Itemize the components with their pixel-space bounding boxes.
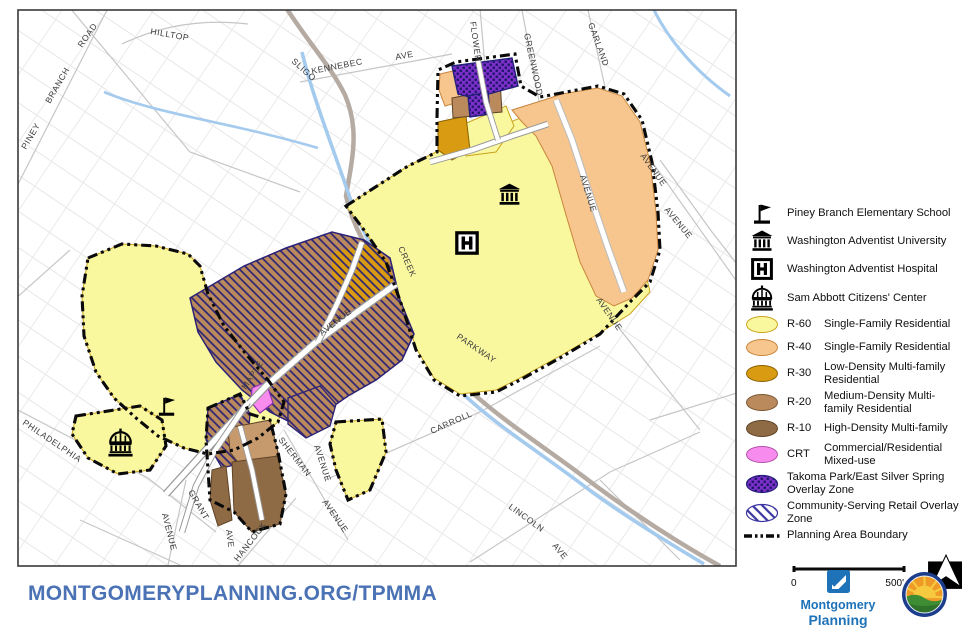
boundary-label: Planning Area Boundary [787, 529, 962, 542]
legend-item-hospital: Washington Adventist Hospital [744, 257, 962, 281]
scale-zero: 0 [791, 578, 797, 589]
legend-item-csr-overlay: Community-Serving Retail Overlay Zone [744, 500, 962, 525]
legend-item-university: Washington Adventist University [744, 229, 962, 253]
legend-item-r40: R-40 Single-Family Residential [744, 338, 962, 357]
footer-url: MONTGOMERYPLANNING.ORG/TPMMA [28, 582, 437, 606]
legend-item-elementary: Piney Branch Elementary School [744, 201, 962, 225]
overlay-label: Community-Serving Retail Overlay Zone [787, 500, 962, 525]
zone-code: R-20 [787, 396, 817, 409]
zone-code: R-10 [787, 422, 817, 435]
legend-label: Washington Adventist University [787, 235, 962, 248]
montgomery-planning-mark-icon [827, 570, 850, 593]
overlay-label: Takoma Park/East Silver Spring Overlay Z… [787, 471, 962, 496]
legend-item-tpess-overlay: Takoma Park/East Silver Spring Overlay Z… [744, 471, 962, 496]
university-icon [744, 229, 780, 253]
r40-swatch [745, 338, 779, 357]
zone-code: R-60 [787, 318, 817, 331]
hospital-icon [457, 233, 477, 253]
zone-code: R-30 [787, 367, 817, 380]
zone-label: Commercial/Residential Mixed-use [824, 442, 962, 467]
legend-label: Piney Branch Elementary School [787, 207, 962, 220]
r10-swatch [745, 419, 779, 438]
montgomery-planning-logo: Montgomery Planning [800, 570, 876, 628]
legend-item-crt: CRT Commercial/Residential Mixed-use [744, 442, 962, 467]
legend-label: Sam Abbott Citizens' Center [787, 292, 962, 305]
zoning-map-svg: PINEY BRANCH ROAD HILLTOP SLIGO KENNEBEC… [0, 0, 740, 572]
map-canvas: PINEY BRANCH ROAD HILLTOP SLIGO KENNEBEC… [0, 0, 740, 577]
takoma-park-zoning-map-page: { "footer": { "url": "MONTGOMERYPLANNING… [0, 0, 964, 626]
zone-label: Single-Family Residential [824, 341, 962, 354]
zone-label: Single-Family Residential [824, 318, 962, 331]
legend-item-citizens-center: Sam Abbott Citizens' Center [744, 285, 962, 311]
dome-icon [744, 285, 780, 311]
legend-item-r20: R-20 Medium-Density Multi-family Residen… [744, 390, 962, 415]
r60-swatch [745, 315, 779, 334]
brand-line1: Montgomery [800, 599, 876, 613]
legend-item-r60: R-60 Single-Family Residential [744, 315, 962, 334]
legend-label: Washington Adventist Hospital [787, 263, 962, 276]
boundary-line-sample [744, 532, 780, 540]
takoma-park-seal-icon [901, 571, 948, 623]
legend-item-r10: R-10 High-Density Multi-family [744, 419, 962, 438]
zone-code: R-40 [787, 341, 817, 354]
zone-label: High-Density Multi-family [824, 422, 962, 435]
zone-label: Low-Density Multi-family Residential [824, 361, 962, 386]
legend: Piney Branch Elementary School Washingto… [744, 201, 962, 590]
csr-overlay-swatch [745, 503, 779, 523]
r20-swatch [745, 393, 779, 412]
flag-icon [744, 201, 780, 225]
zone-code: CRT [787, 448, 817, 461]
legend-item-r30: R-30 Low-Density Multi-family Residentia… [744, 361, 962, 386]
crt-swatch [745, 445, 779, 464]
zone-label: Medium-Density Multi-family Residential [824, 390, 962, 415]
hospital-icon [744, 257, 780, 281]
r30-swatch [745, 364, 779, 383]
legend-item-boundary: Planning Area Boundary [744, 529, 962, 542]
tpess-overlay-swatch [745, 474, 779, 494]
